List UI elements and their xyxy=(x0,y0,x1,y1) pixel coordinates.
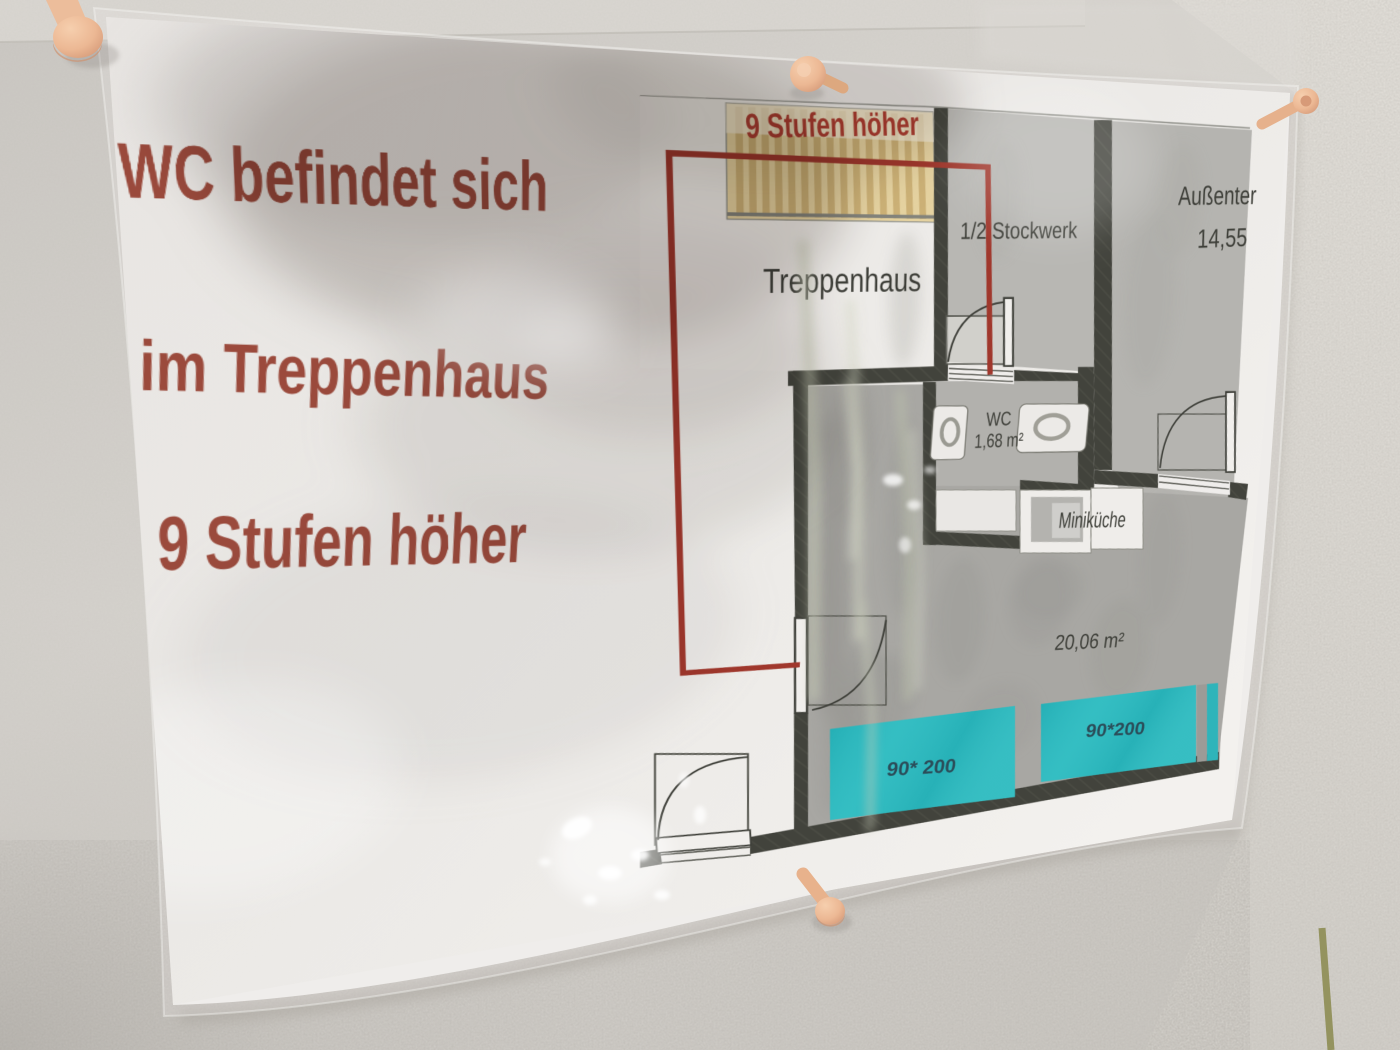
svg-text:20,06 m²: 20,06 m² xyxy=(1053,628,1125,655)
svg-text:Außenter: Außenter xyxy=(1178,181,1257,211)
svg-text:1,68 m²: 1,68 m² xyxy=(974,429,1024,453)
svg-text:Miniküche: Miniküche xyxy=(1057,507,1127,533)
svg-text:90* 200: 90* 200 xyxy=(885,755,957,781)
svg-text:WC: WC xyxy=(986,408,1012,431)
svg-text:90*200: 90*200 xyxy=(1084,718,1146,741)
svg-text:14,55: 14,55 xyxy=(1197,223,1248,254)
